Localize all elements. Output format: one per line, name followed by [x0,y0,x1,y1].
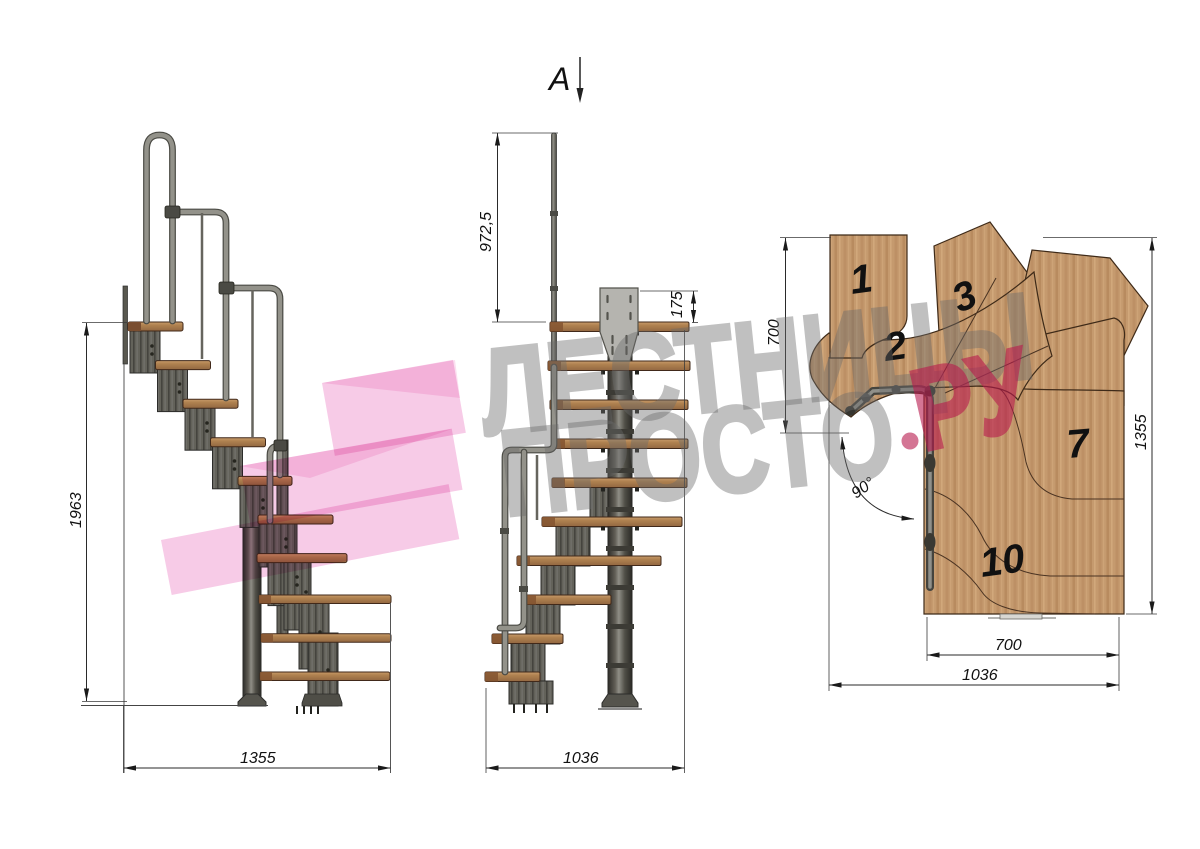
svg-text:700: 700 [995,637,1022,654]
svg-text:1355: 1355 [1133,414,1150,450]
svg-text:1963: 1963 [68,492,85,528]
svg-text:1036: 1036 [563,750,599,767]
svg-text:10: 10 [977,536,1027,586]
svg-text:A: A [547,61,570,97]
svg-text:1036: 1036 [962,667,998,684]
svg-text:1355: 1355 [240,750,276,767]
svg-text:972,5: 972,5 [478,212,495,252]
